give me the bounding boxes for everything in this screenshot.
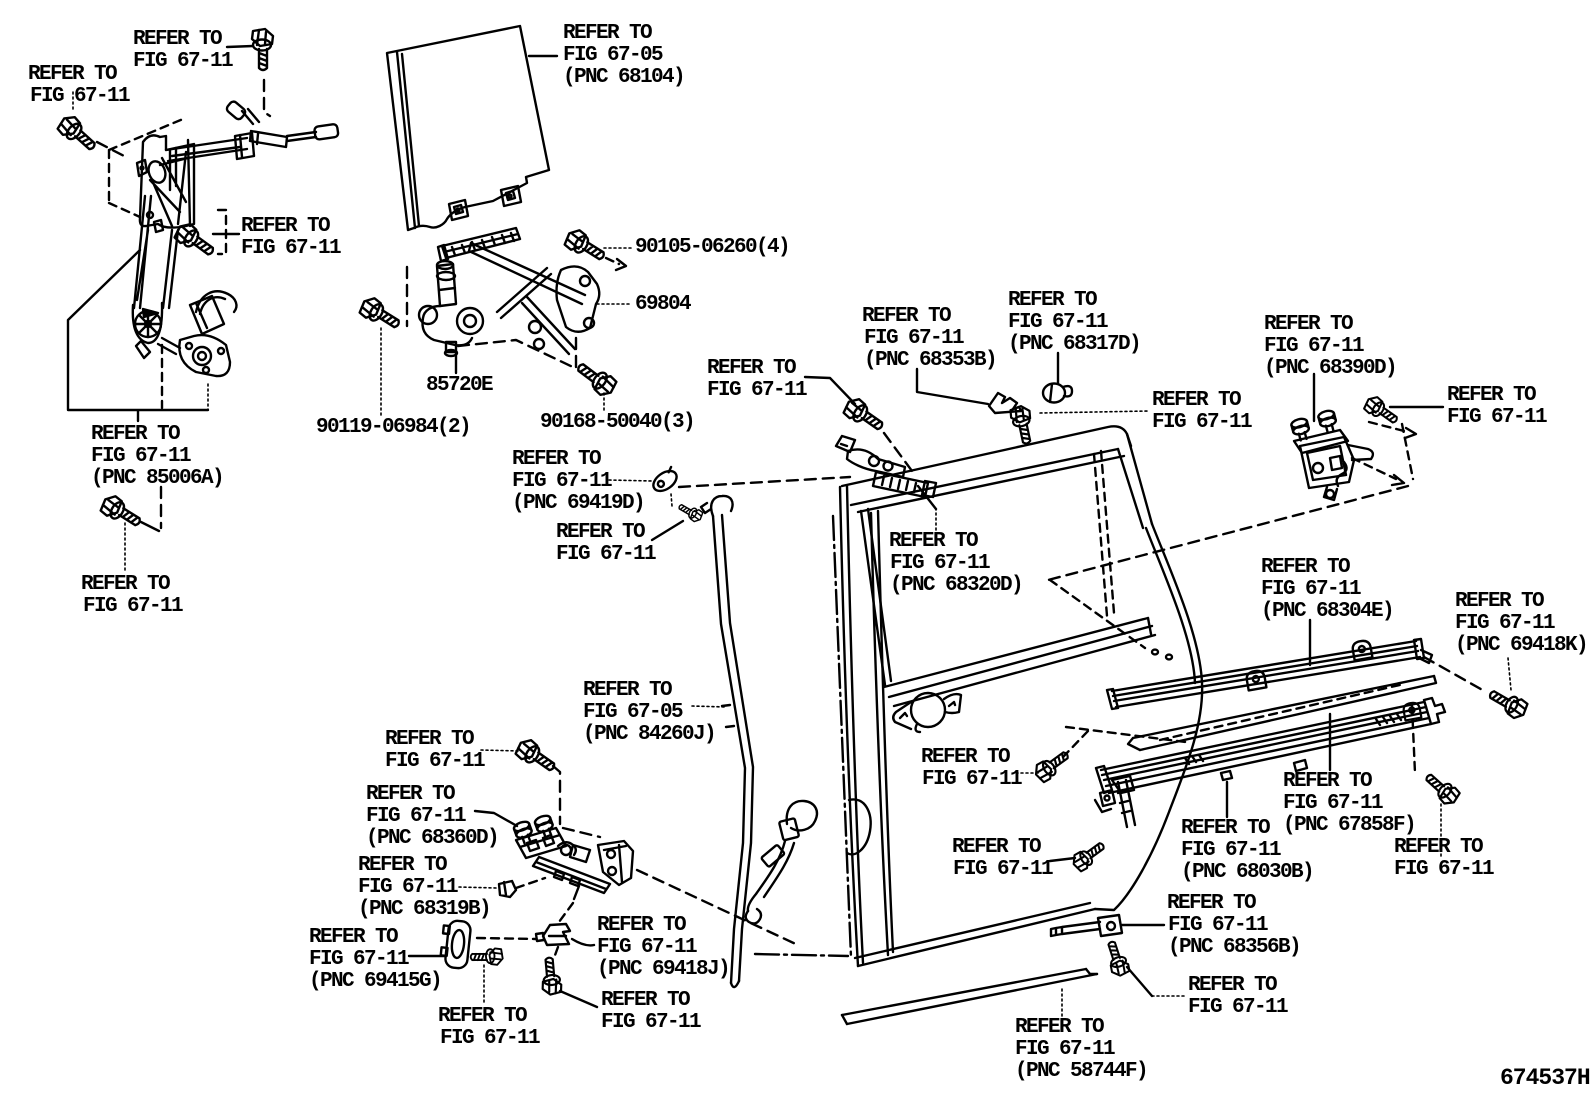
svg-text:FIG 67-11: FIG 67-11 xyxy=(1261,578,1361,601)
svg-text:FIG 67-11: FIG 67-11 xyxy=(512,470,612,493)
svg-text:REFER TO: REFER TO xyxy=(1455,590,1544,613)
svg-text:(PNC 85006A): (PNC 85006A) xyxy=(91,467,223,490)
svg-text:(PNC 58744F): (PNC 58744F) xyxy=(1015,1060,1147,1083)
svg-text:(PNC 68356B): (PNC 68356B) xyxy=(1168,936,1300,959)
svg-text:REFER TO: REFER TO xyxy=(438,1005,527,1028)
svg-text:FIG 67-11: FIG 67-11 xyxy=(597,936,697,959)
svg-text:69804: 69804 xyxy=(635,293,691,316)
svg-text:REFER TO: REFER TO xyxy=(1283,770,1372,793)
svg-text:REFER TO: REFER TO xyxy=(358,854,447,877)
svg-text:REFER TO: REFER TO xyxy=(601,989,690,1012)
svg-text:(PNC 69419D): (PNC 69419D) xyxy=(512,492,644,515)
svg-text:FIG 67-11: FIG 67-11 xyxy=(385,750,485,773)
svg-text:REFER TO: REFER TO xyxy=(366,783,455,806)
svg-text:FIG 67-11: FIG 67-11 xyxy=(1188,996,1288,1019)
svg-text:(PNC 68030B): (PNC 68030B) xyxy=(1181,861,1313,884)
svg-text:90119-06984(2): 90119-06984(2) xyxy=(316,416,470,439)
svg-text:FIG 67-11: FIG 67-11 xyxy=(922,768,1022,791)
svg-text:FIG 67-11: FIG 67-11 xyxy=(1152,411,1252,434)
svg-text:REFER TO: REFER TO xyxy=(1181,817,1270,840)
svg-text:(PNC 68353B): (PNC 68353B) xyxy=(864,349,996,372)
svg-text:(PNC 84260J): (PNC 84260J) xyxy=(583,723,715,746)
svg-text:REFER TO: REFER TO xyxy=(921,746,1010,769)
svg-text:FIG 67-11: FIG 67-11 xyxy=(309,948,409,971)
svg-text:(PNC 69418J): (PNC 69418J) xyxy=(597,958,729,981)
svg-text:REFER TO: REFER TO xyxy=(1188,974,1277,997)
svg-text:FIG 67-11: FIG 67-11 xyxy=(1394,858,1494,881)
svg-text:(PNC 68320D): (PNC 68320D) xyxy=(890,574,1022,597)
svg-text:FIG 67-11: FIG 67-11 xyxy=(366,805,466,828)
svg-text:(PNC 69418K): (PNC 69418K) xyxy=(1455,634,1587,657)
svg-text:(PNC 68390D): (PNC 68390D) xyxy=(1264,357,1396,380)
svg-text:REFER TO: REFER TO xyxy=(512,448,601,471)
svg-text:FIG 67-11: FIG 67-11 xyxy=(358,876,458,899)
svg-text:REFER TO: REFER TO xyxy=(1447,384,1536,407)
svg-text:(PNC 68317D): (PNC 68317D) xyxy=(1008,333,1140,356)
svg-text:REFER TO: REFER TO xyxy=(1015,1016,1104,1039)
svg-text:FIG 67-11: FIG 67-11 xyxy=(1283,792,1383,815)
svg-text:FIG 67-11: FIG 67-11 xyxy=(91,445,191,468)
svg-text:REFER TO: REFER TO xyxy=(28,63,117,86)
svg-text:85720E: 85720E xyxy=(426,374,493,397)
svg-text:REFER TO: REFER TO xyxy=(385,728,474,751)
svg-text:FIG 67-11: FIG 67-11 xyxy=(601,1011,701,1034)
svg-text:REFER TO: REFER TO xyxy=(309,926,398,949)
svg-text:FIG 67-11: FIG 67-11 xyxy=(1181,839,1281,862)
svg-text:REFER TO: REFER TO xyxy=(91,423,180,446)
svg-text:REFER TO: REFER TO xyxy=(1394,836,1483,859)
svg-text:FIG 67-11: FIG 67-11 xyxy=(890,552,990,575)
svg-text:FIG 67-11: FIG 67-11 xyxy=(1455,612,1555,635)
svg-text:90168-50040(3): 90168-50040(3) xyxy=(540,411,694,434)
svg-text:FIG 67-11: FIG 67-11 xyxy=(556,543,656,566)
svg-text:REFER TO: REFER TO xyxy=(563,22,652,45)
svg-text:FIG 67-11: FIG 67-11 xyxy=(1015,1038,1115,1061)
svg-text:REFER TO: REFER TO xyxy=(597,914,686,937)
svg-text:FIG 67-05: FIG 67-05 xyxy=(563,44,663,67)
svg-text:FIG 67-11: FIG 67-11 xyxy=(30,85,130,108)
svg-text:(PNC 68304E): (PNC 68304E) xyxy=(1261,600,1393,623)
svg-text:674537H: 674537H xyxy=(1500,1065,1590,1091)
svg-text:FIG 67-11: FIG 67-11 xyxy=(440,1027,540,1050)
svg-text:FIG 67-11: FIG 67-11 xyxy=(241,237,341,260)
svg-text:FIG 67-11: FIG 67-11 xyxy=(864,327,964,350)
svg-text:REFER TO: REFER TO xyxy=(241,215,330,238)
svg-text:REFER TO: REFER TO xyxy=(1152,389,1241,412)
svg-text:FIG 67-11: FIG 67-11 xyxy=(1168,914,1268,937)
svg-text:FIG 67-11: FIG 67-11 xyxy=(133,50,233,73)
svg-text:(PNC 69415G): (PNC 69415G) xyxy=(309,970,441,993)
svg-text:REFER TO: REFER TO xyxy=(1167,892,1256,915)
svg-text:REFER TO: REFER TO xyxy=(556,521,645,544)
svg-text:REFER TO: REFER TO xyxy=(707,357,796,380)
svg-text:REFER TO: REFER TO xyxy=(1261,556,1350,579)
svg-text:90105-06260(4): 90105-06260(4) xyxy=(635,236,789,259)
svg-text:(PNC 67858F): (PNC 67858F) xyxy=(1283,814,1415,837)
svg-text:REFER TO: REFER TO xyxy=(889,530,978,553)
svg-text:REFER TO: REFER TO xyxy=(1008,289,1097,312)
svg-text:(PNC 68319B): (PNC 68319B) xyxy=(358,898,490,921)
svg-text:REFER TO: REFER TO xyxy=(583,679,672,702)
svg-text:FIG 67-11: FIG 67-11 xyxy=(83,595,183,618)
svg-text:REFER TO: REFER TO xyxy=(133,28,222,51)
svg-text:FIG 67-11: FIG 67-11 xyxy=(707,379,807,402)
svg-text:REFER TO: REFER TO xyxy=(81,573,170,596)
svg-text:(PNC 68360D): (PNC 68360D) xyxy=(366,827,498,850)
svg-text:FIG 67-05: FIG 67-05 xyxy=(583,701,683,724)
svg-text:FIG 67-11: FIG 67-11 xyxy=(1264,335,1364,358)
svg-text:(PNC 68104): (PNC 68104) xyxy=(563,66,684,89)
svg-text:REFER TO: REFER TO xyxy=(1264,313,1353,336)
svg-text:REFER TO: REFER TO xyxy=(862,305,951,328)
svg-text:FIG 67-11: FIG 67-11 xyxy=(953,858,1053,881)
svg-text:REFER TO: REFER TO xyxy=(952,836,1041,859)
svg-text:FIG 67-11: FIG 67-11 xyxy=(1008,311,1108,334)
svg-text:FIG 67-11: FIG 67-11 xyxy=(1447,406,1547,429)
